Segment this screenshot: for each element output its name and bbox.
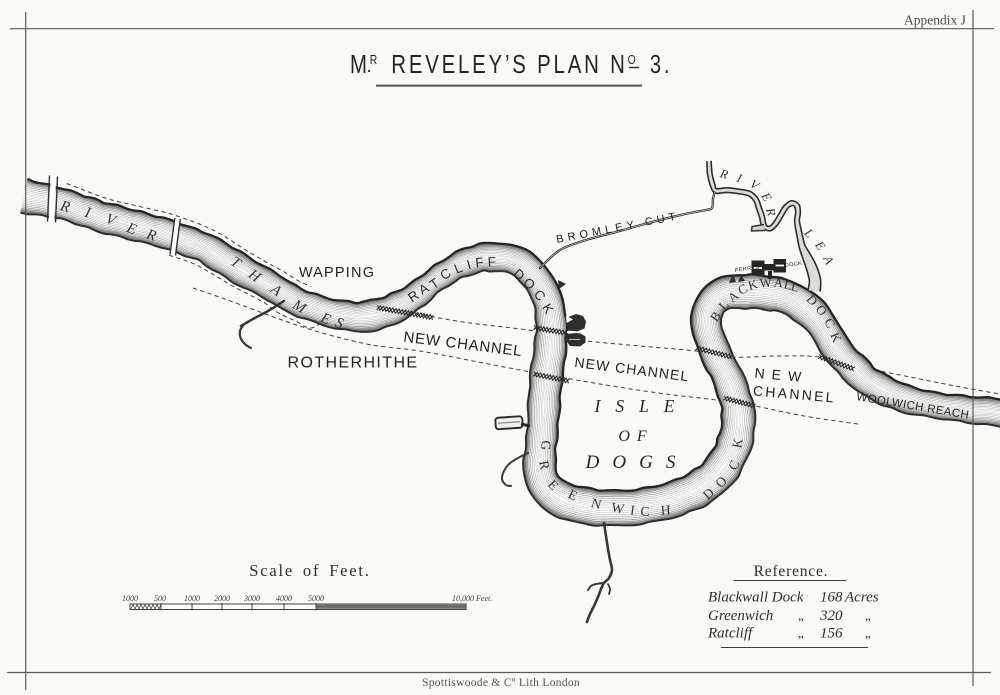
svg-text:DOGS: DOGS	[585, 452, 689, 473]
svg-text:F: F	[475, 255, 485, 271]
svg-text:„: „	[798, 608, 804, 623]
svg-text:„: „	[798, 626, 804, 641]
svg-text:2000: 2000	[214, 594, 230, 603]
svg-text:Acres: Acres	[844, 590, 879, 606]
svg-text:H: H	[660, 502, 671, 518]
svg-text:168: 168	[820, 590, 843, 606]
svg-text:Scale of Feet.: Scale of Feet.	[249, 561, 370, 580]
svg-text:OF: OF	[618, 428, 653, 445]
svg-text:WAPPING: WAPPING	[299, 265, 375, 281]
svg-text:500: 500	[154, 594, 166, 603]
svg-text:4000: 4000	[276, 594, 292, 603]
svg-text:Ratcliff: Ratcliff	[707, 626, 754, 642]
svg-text:3000: 3000	[243, 594, 260, 603]
svg-text:156: 156	[820, 626, 843, 642]
svg-text:Greenwich: Greenwich	[708, 608, 773, 624]
svg-text:F: F	[487, 254, 496, 269]
svg-text:Reference.: Reference.	[754, 563, 829, 580]
svg-text:1000: 1000	[122, 594, 138, 603]
svg-text:10,000 Feet.: 10,000 Feet.	[452, 594, 492, 603]
svg-text:„: „	[865, 608, 871, 623]
svg-text:G: G	[538, 440, 554, 451]
svg-text:5000: 5000	[308, 594, 324, 603]
svg-text:1000: 1000	[184, 594, 200, 603]
svg-text:ISLE: ISLE	[594, 396, 690, 416]
svg-text:MRREVELEY’S PLAN NO3.: MRREVELEY’S PLAN NO3.	[350, 50, 672, 79]
svg-text:„: „	[865, 626, 871, 641]
svg-text:ROTHERHITHE: ROTHERHITHE	[288, 355, 419, 372]
svg-text:C: C	[640, 504, 649, 519]
svg-text:Appendix J: Appendix J	[904, 13, 966, 28]
svg-text:320: 320	[819, 608, 843, 624]
svg-text:Spottiswoode & Cº Lith London: Spottiswoode & Cº Lith London	[422, 677, 580, 689]
svg-text:Blackwall Dock: Blackwall Dock	[708, 590, 804, 606]
svg-text:W: W	[759, 274, 773, 290]
